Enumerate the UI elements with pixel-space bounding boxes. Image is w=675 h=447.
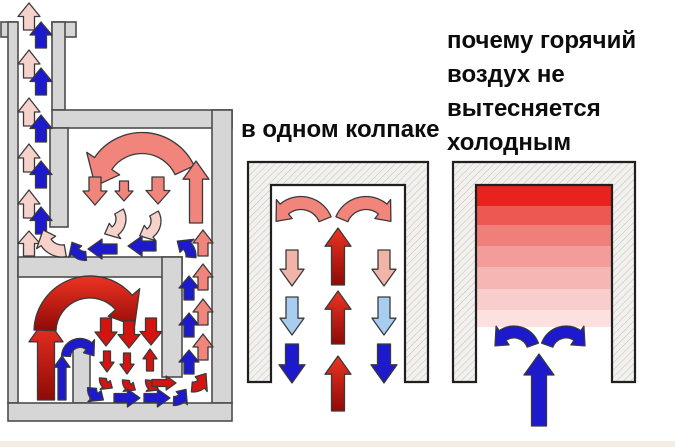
- temperature-gradient: [477, 186, 612, 327]
- salmon-arrow: [193, 334, 213, 360]
- temperature-band: [477, 246, 612, 267]
- salmon-curve-arrow: [276, 197, 331, 222]
- temperature-band: [477, 206, 612, 225]
- salmon-curve-arrow: [336, 197, 391, 222]
- temperature-band: [477, 310, 612, 327]
- pale-pink-curve-arrow: [140, 211, 161, 241]
- flow-arrows: [18, 3, 213, 407]
- pale-pink-curve-arrow: [105, 209, 126, 239]
- light-blue-arrow: [280, 297, 304, 335]
- temperature-band: [477, 267, 612, 289]
- bottom-wall: [8, 403, 232, 421]
- hot-red-curve-arrow: [99, 378, 112, 389]
- mid-dividing-wall: [18, 257, 182, 277]
- salmon-arrow: [183, 161, 209, 223]
- temperature-band: [477, 186, 612, 206]
- hot-red-arrow: [140, 318, 162, 345]
- hot-red-curve-arrow: [191, 374, 207, 392]
- outer-right-wall: [212, 110, 232, 403]
- flow-arrows: [276, 197, 397, 411]
- pale-pink-curve-arrow: [37, 230, 67, 257]
- hot-red-arrow: [100, 351, 114, 372]
- blush-arrow: [280, 250, 304, 286]
- red-grad-arrow: [325, 228, 351, 285]
- question-line-3: вытесняется: [447, 92, 636, 126]
- red-grad-arrow: [325, 291, 351, 344]
- hot-red-arrow: [95, 318, 117, 346]
- dark-blue-arrow: [524, 354, 554, 426]
- chimney-left-wall: [8, 22, 18, 403]
- red-grad-arrow: [325, 356, 351, 411]
- two-bell-stove-diagram: [1, 3, 232, 421]
- temperature-band: [477, 225, 612, 246]
- light-blue-arrow: [372, 297, 396, 335]
- dark-blue-curve-arrow: [542, 326, 585, 347]
- dark-blue-arrow: [371, 344, 397, 383]
- hot-red-arrow: [143, 349, 157, 371]
- chimney-right-wall: [52, 22, 65, 110]
- salmon-curve-arrow: [87, 133, 194, 186]
- temperature-band: [477, 289, 612, 310]
- pale-pink-arrow: [18, 231, 40, 256]
- blush-arrow: [372, 250, 396, 286]
- bottom-stripe: [0, 441, 675, 447]
- chimney-inner-wall: [50, 128, 68, 227]
- dark-blue-arrow: [54, 356, 70, 400]
- question-line-4: холодным: [447, 126, 636, 160]
- salmon-arrow: [146, 177, 170, 204]
- hot-red-arrow: [118, 321, 140, 348]
- upper-bell-top-wall: [52, 110, 232, 128]
- dark-blue-arrow: [279, 344, 305, 383]
- single-bell-title: в одном колпаке: [241, 116, 439, 144]
- question-title: почему горячий воздух не вытесняется хол…: [447, 24, 636, 160]
- pale-pink-arrow: [18, 3, 40, 30]
- flow-arrows: [495, 326, 585, 426]
- dark-blue-curve-arrow: [173, 389, 187, 405]
- hot-red-arrow: [120, 353, 134, 374]
- single-bell-diagram: [248, 162, 428, 411]
- dark-blue-curve-arrow: [495, 326, 538, 347]
- dark-blue-arrow: [88, 239, 117, 259]
- stove-airflow-infographic: в одном колпаке почему горячий воздух не…: [0, 0, 675, 447]
- question-line-1: почему горячий: [447, 24, 636, 58]
- question-line-2: воздух не: [447, 58, 636, 92]
- salmon-arrow: [115, 181, 133, 201]
- lower-bell-right-wall: [162, 257, 182, 377]
- stratification-diagram: [453, 162, 635, 426]
